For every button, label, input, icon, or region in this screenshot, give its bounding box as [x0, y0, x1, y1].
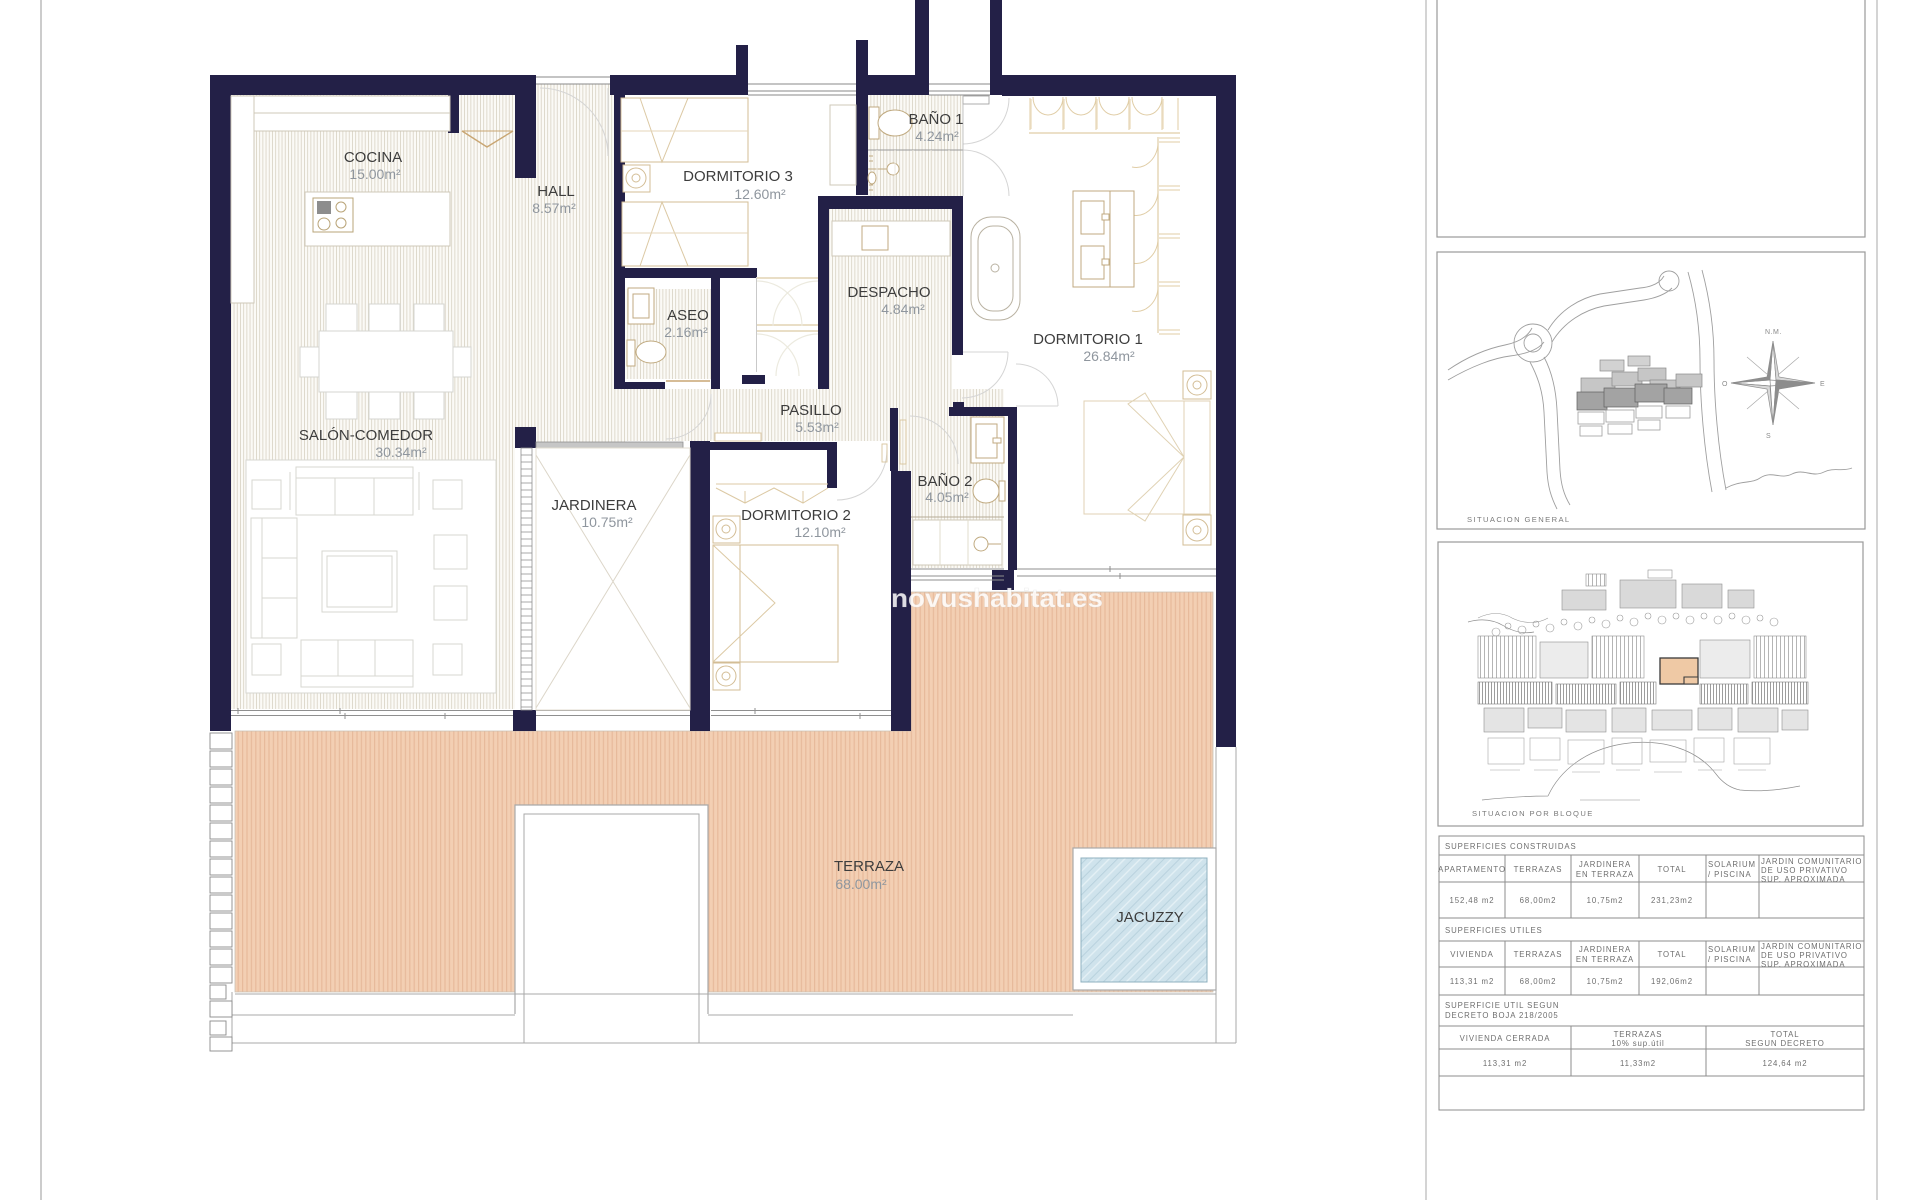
svg-text:N.M.: N.M.: [1765, 329, 1782, 336]
svg-text:68.00m²: 68.00m²: [835, 876, 887, 892]
svg-text:TOTAL: TOTAL: [1771, 1030, 1800, 1039]
svg-text:11,33m2: 11,33m2: [1620, 1059, 1656, 1068]
svg-text:68,00m2: 68,00m2: [1520, 977, 1557, 986]
svg-text:192,06m2: 192,06m2: [1651, 977, 1693, 986]
svg-text:SUPERFICIES CONSTRUIDAS: SUPERFICIES CONSTRUIDAS: [1445, 842, 1577, 851]
svg-text:113,31 m2: 113,31 m2: [1483, 1059, 1527, 1068]
svg-text:VIVIENDA CERRADA: VIVIENDA CERRADA: [1460, 1034, 1551, 1043]
svg-text:/ PISCINA: / PISCINA: [1708, 955, 1752, 964]
svg-text:SITUACION GENERAL: SITUACION GENERAL: [1467, 515, 1571, 524]
svg-text:26.84m²: 26.84m²: [1083, 348, 1135, 364]
svg-text:APARTAMENTO: APARTAMENTO: [1438, 865, 1506, 874]
svg-text:JARDIN COMUNITARIO: JARDIN COMUNITARIO: [1761, 857, 1862, 866]
svg-text:JARDINERA: JARDINERA: [1579, 860, 1631, 869]
svg-text:SUPERFICIES UTILES: SUPERFICIES UTILES: [1445, 926, 1543, 935]
svg-text:68,00m2: 68,00m2: [1520, 896, 1557, 905]
svg-text:TOTAL: TOTAL: [1658, 865, 1687, 874]
svg-text:15.00m²: 15.00m²: [349, 166, 401, 182]
svg-text:TERRAZAS: TERRAZAS: [1514, 950, 1563, 959]
svg-text:TOTAL: TOTAL: [1658, 950, 1687, 959]
svg-text:JARDINERA: JARDINERA: [1579, 945, 1631, 954]
svg-text:10,75m2: 10,75m2: [1587, 977, 1624, 986]
svg-text:8.57m²: 8.57m²: [532, 200, 576, 216]
svg-text:DE USO PRIVATIVO: DE USO PRIVATIVO: [1761, 866, 1848, 875]
svg-text:COCINA: COCINA: [344, 149, 402, 166]
svg-text:DORMITORIO 2: DORMITORIO 2: [741, 507, 851, 524]
svg-text:5.53m²: 5.53m²: [795, 419, 839, 435]
svg-text:12.60m²: 12.60m²: [734, 186, 786, 202]
svg-text:SUP. APROXIMADA: SUP. APROXIMADA: [1761, 960, 1845, 969]
svg-text:PASILLO: PASILLO: [780, 402, 841, 419]
svg-text:10,75m2: 10,75m2: [1587, 896, 1624, 905]
svg-text:HALL: HALL: [537, 183, 575, 200]
svg-text:DESPACHO: DESPACHO: [847, 284, 930, 301]
svg-text:113,31 m2: 113,31 m2: [1450, 977, 1494, 986]
svg-text:TERRAZAS: TERRAZAS: [1514, 865, 1563, 874]
svg-text:10.75m²: 10.75m²: [581, 514, 633, 530]
svg-text:SOLARIUM: SOLARIUM: [1708, 945, 1756, 954]
svg-text:JACUZZY: JACUZZY: [1116, 909, 1184, 926]
svg-text:BAÑO 2: BAÑO 2: [917, 473, 972, 490]
svg-text:SUP. APROXIMADA: SUP. APROXIMADA: [1761, 875, 1845, 884]
svg-text:novushabitat.es: novushabitat.es: [891, 583, 1103, 613]
svg-text:JARDIN COMUNITARIO: JARDIN COMUNITARIO: [1761, 942, 1862, 951]
svg-text:ASEO: ASEO: [667, 307, 709, 324]
svg-text:TERRAZAS: TERRAZAS: [1614, 1030, 1663, 1039]
svg-text:VIVIENDA: VIVIENDA: [1450, 950, 1494, 959]
svg-text:JARDINERA: JARDINERA: [551, 497, 636, 514]
svg-text:2.16m²: 2.16m²: [664, 324, 708, 340]
svg-text:SOLARIUM: SOLARIUM: [1708, 860, 1756, 869]
svg-text:DECRETO BOJA 218/2005: DECRETO BOJA 218/2005: [1445, 1011, 1559, 1020]
svg-text:O: O: [1722, 381, 1728, 388]
svg-text:231,23m2: 231,23m2: [1651, 896, 1693, 905]
svg-text:/ PISCINA: / PISCINA: [1708, 870, 1752, 879]
svg-text:4.05m²: 4.05m²: [925, 489, 969, 505]
svg-text:SALÓN-COMEDOR: SALÓN-COMEDOR: [299, 427, 433, 444]
svg-text:SUPERFICIE UTIL SEGUN: SUPERFICIE UTIL SEGUN: [1445, 1001, 1559, 1010]
svg-text:S: S: [1766, 433, 1771, 440]
svg-text:30.34m²: 30.34m²: [375, 444, 427, 460]
svg-text:EN TERRAZA: EN TERRAZA: [1576, 870, 1634, 879]
svg-text:BAÑO 1: BAÑO 1: [908, 111, 963, 128]
svg-text:SEGUN DECRETO: SEGUN DECRETO: [1745, 1039, 1825, 1048]
svg-text:DORMITORIO 1: DORMITORIO 1: [1033, 331, 1143, 348]
svg-text:4.24m²: 4.24m²: [915, 128, 959, 144]
svg-text:4.84m²: 4.84m²: [881, 301, 925, 317]
svg-text:124,64 m2: 124,64 m2: [1763, 1059, 1808, 1068]
svg-text:DORMITORIO 3: DORMITORIO 3: [683, 168, 793, 185]
svg-text:E: E: [1820, 381, 1825, 388]
svg-text:10% sup.útil: 10% sup.útil: [1611, 1039, 1664, 1048]
svg-text:SITUACION POR BLOQUE: SITUACION POR BLOQUE: [1472, 809, 1594, 818]
svg-text:DE USO PRIVATIVO: DE USO PRIVATIVO: [1761, 951, 1848, 960]
svg-text:152,48 m2: 152,48 m2: [1450, 896, 1495, 905]
svg-text:TERRAZA: TERRAZA: [834, 858, 904, 875]
svg-text:12.10m²: 12.10m²: [794, 524, 846, 540]
svg-text:EN TERRAZA: EN TERRAZA: [1576, 955, 1634, 964]
